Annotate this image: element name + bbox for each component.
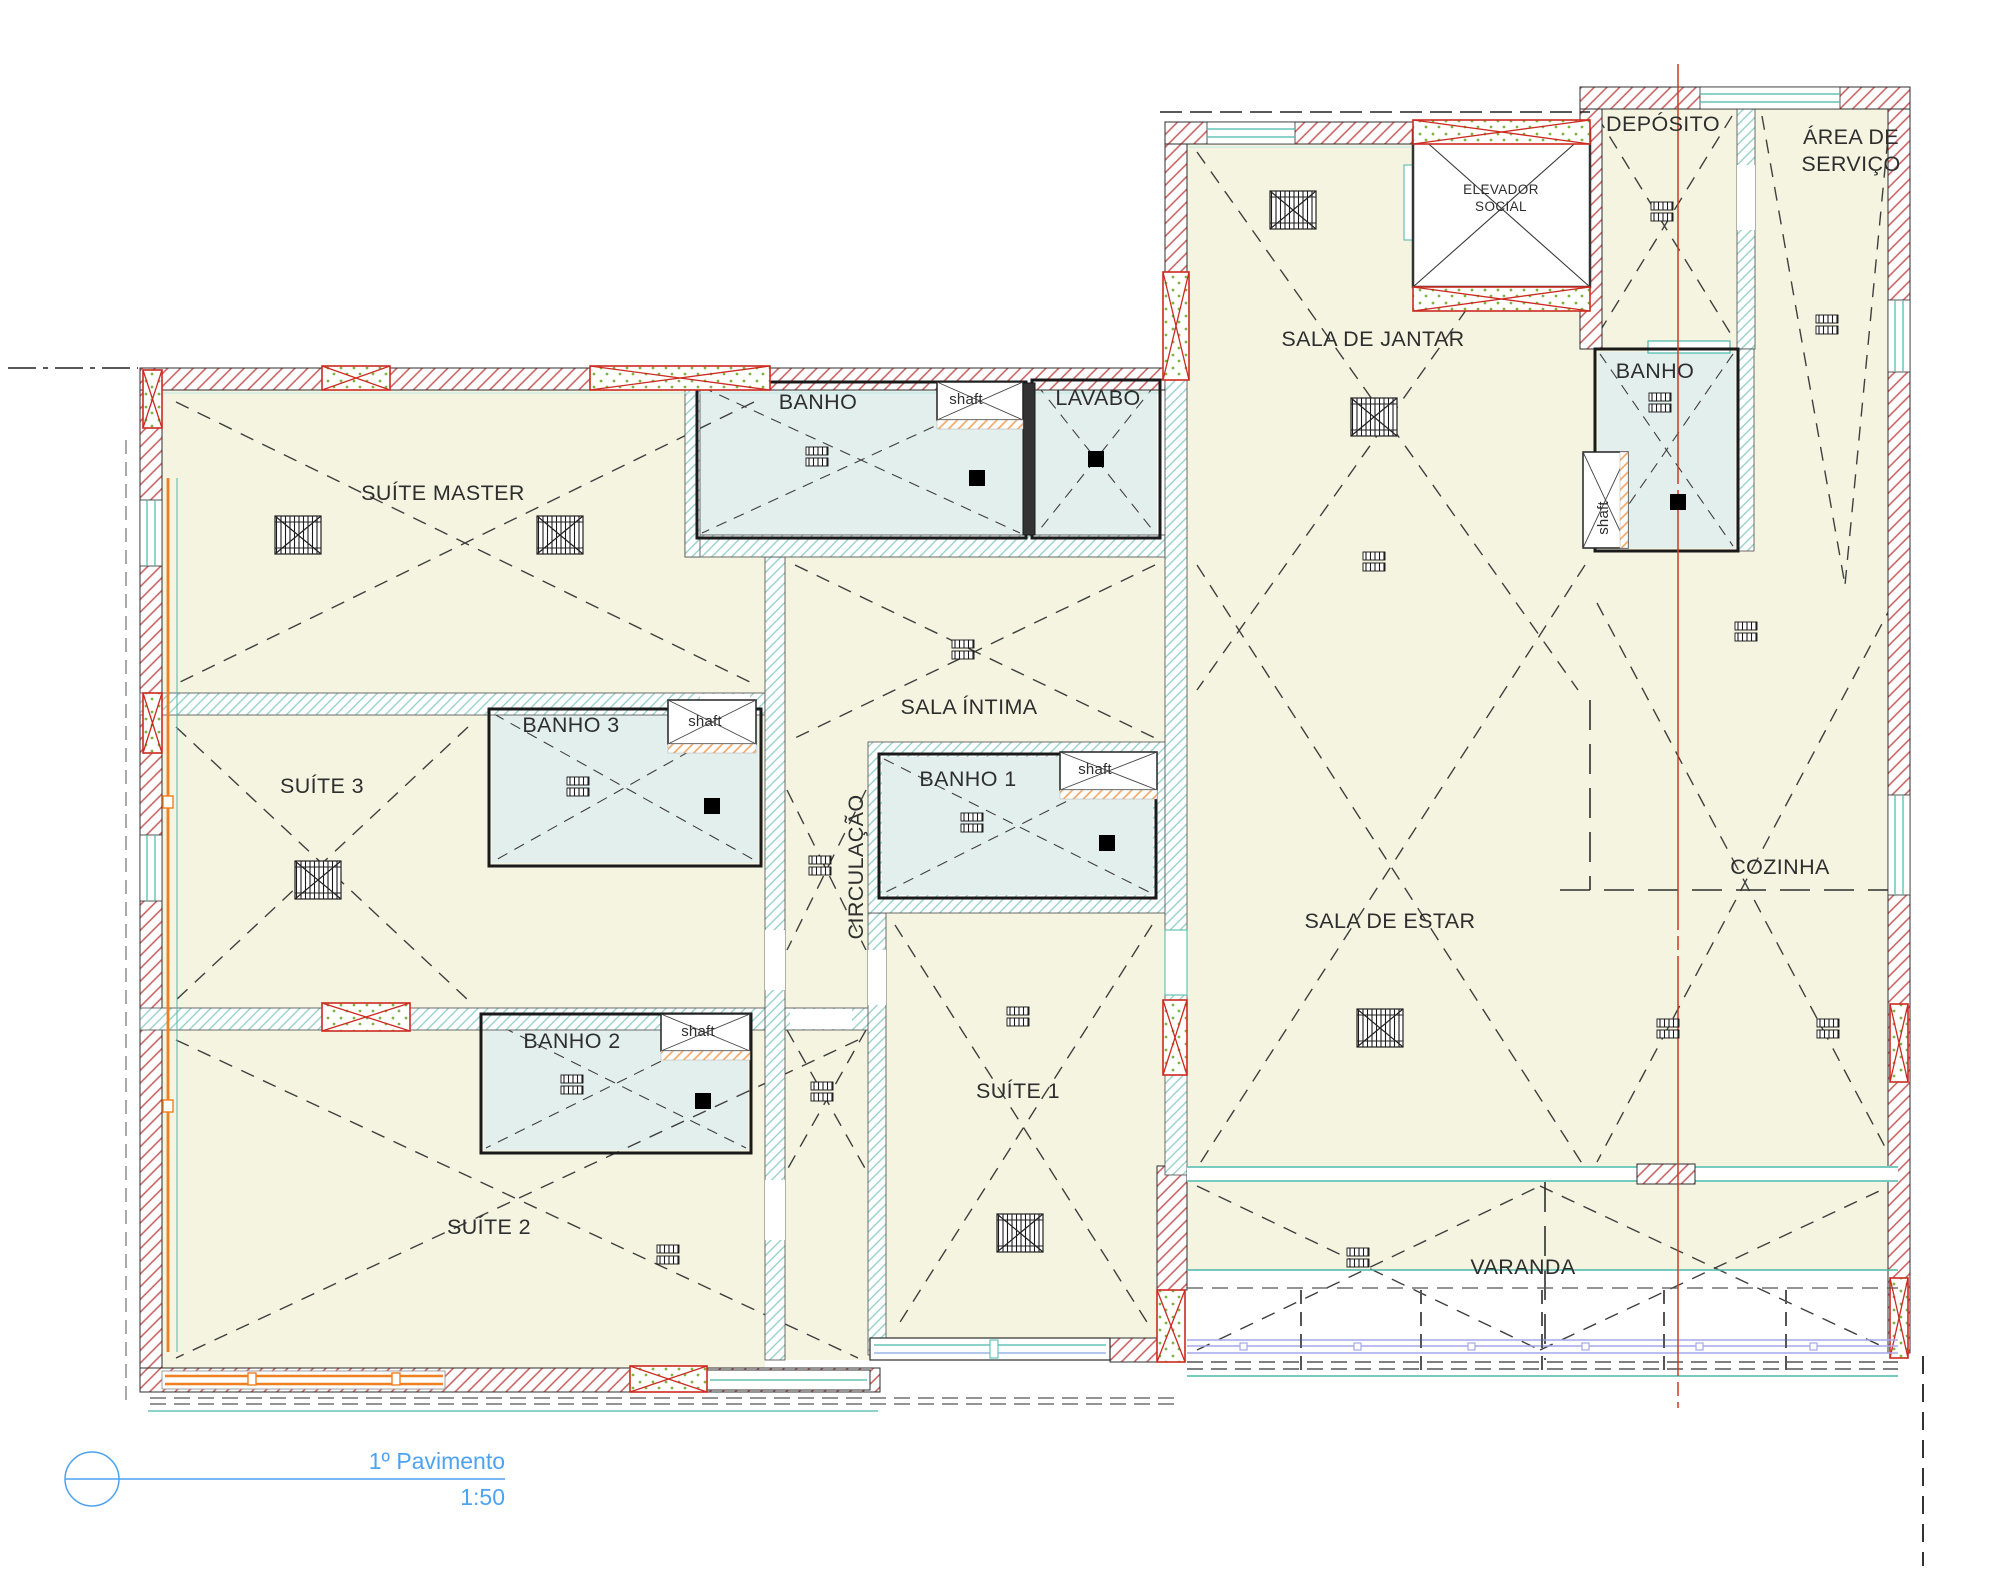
room-label-banho: BANHO	[779, 390, 857, 416]
shaft-label-banho-1: shaft	[1078, 761, 1112, 779]
shaft-label-banho-2: shaft	[681, 1023, 715, 1041]
room-label-sala-de-estar: SALA DE ESTAR	[1305, 909, 1476, 935]
drawing-title: 1º Pavimento	[185, 1448, 505, 1475]
room-label-circulacao: CIRCULAÇÃO	[844, 795, 870, 940]
room-label-suite-2: SUÍTE 2	[447, 1215, 531, 1241]
room-label-suite-1: SUÍTE 1	[976, 1079, 1060, 1105]
room-label-suite-master: SUÍTE MASTER	[361, 481, 525, 507]
shaft-label-banho-servico: shaft	[1595, 501, 1613, 535]
room-label-sala-de-jantar: SALA DE JANTAR	[1281, 327, 1464, 353]
room-label-area-de-servico-line1: ÁREA DE	[1803, 125, 1899, 151]
room-label-suite-3: SUÍTE 3	[280, 774, 364, 800]
room-label-sala-intima: SALA ÍNTIMA	[900, 695, 1037, 721]
room-label-deposito: DEPÓSITO	[1606, 112, 1720, 138]
room-label-banho-servico: BANHO	[1616, 359, 1694, 385]
room-label-banho-2: BANHO 2	[523, 1029, 620, 1055]
room-label-cozinha: COZINHA	[1730, 855, 1830, 881]
drawing-scale: 1:50	[185, 1484, 505, 1511]
shaft-label-banho-3: shaft	[688, 713, 722, 731]
room-label-banho-3: BANHO 3	[522, 713, 619, 739]
room-label-banho-1: BANHO 1	[919, 767, 1016, 793]
room-label-varanda: VARANDA	[1470, 1255, 1575, 1281]
room-label-lavabo: LAVABO	[1055, 386, 1140, 412]
room-label-area-de-servico-line2: SERVIÇO	[1801, 152, 1900, 178]
room-label-elevador-line2: SOCIAL	[1475, 199, 1527, 215]
floor-plan: SUÍTE MASTER SUÍTE 3 SUÍTE 2 SUÍTE 1 BAN…	[0, 0, 2013, 1572]
shaft-label-banho-top: shaft	[949, 391, 983, 409]
room-label-elevador-line1: ELEVADOR	[1463, 182, 1539, 198]
